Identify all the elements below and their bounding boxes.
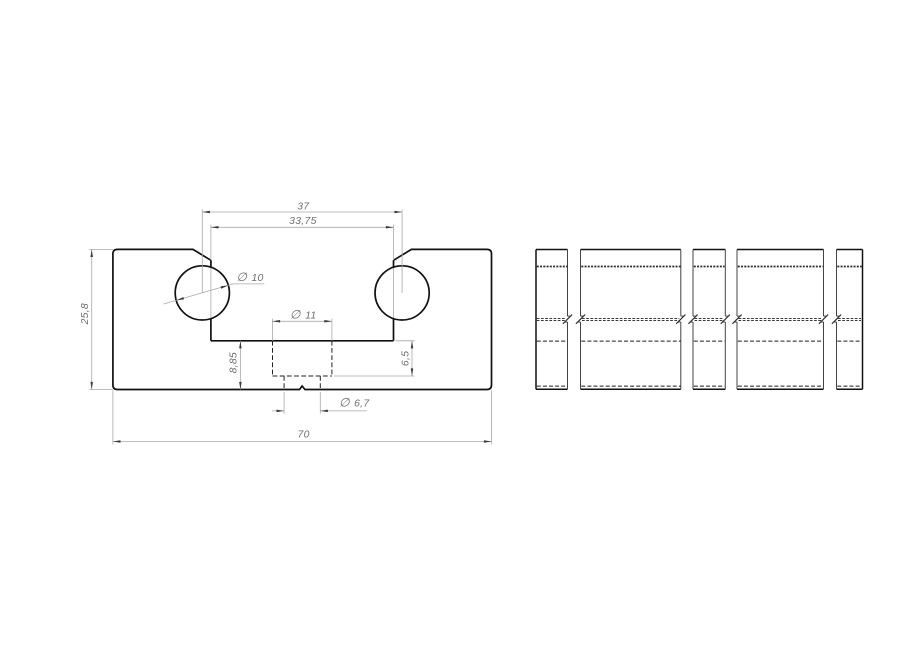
svg-text:70: 70 [298,430,310,441]
svg-text:∅ 6,7: ∅ 6,7 [339,395,370,409]
svg-text:∅ 10: ∅ 10 [236,270,263,284]
svg-text:25,8: 25,8 [80,303,91,325]
svg-text:37: 37 [297,202,310,213]
svg-text:33,75: 33,75 [289,216,317,227]
svg-text:6,5: 6,5 [401,351,412,366]
svg-text:8,85: 8,85 [229,352,240,373]
svg-text:∅ 11: ∅ 11 [290,307,317,321]
